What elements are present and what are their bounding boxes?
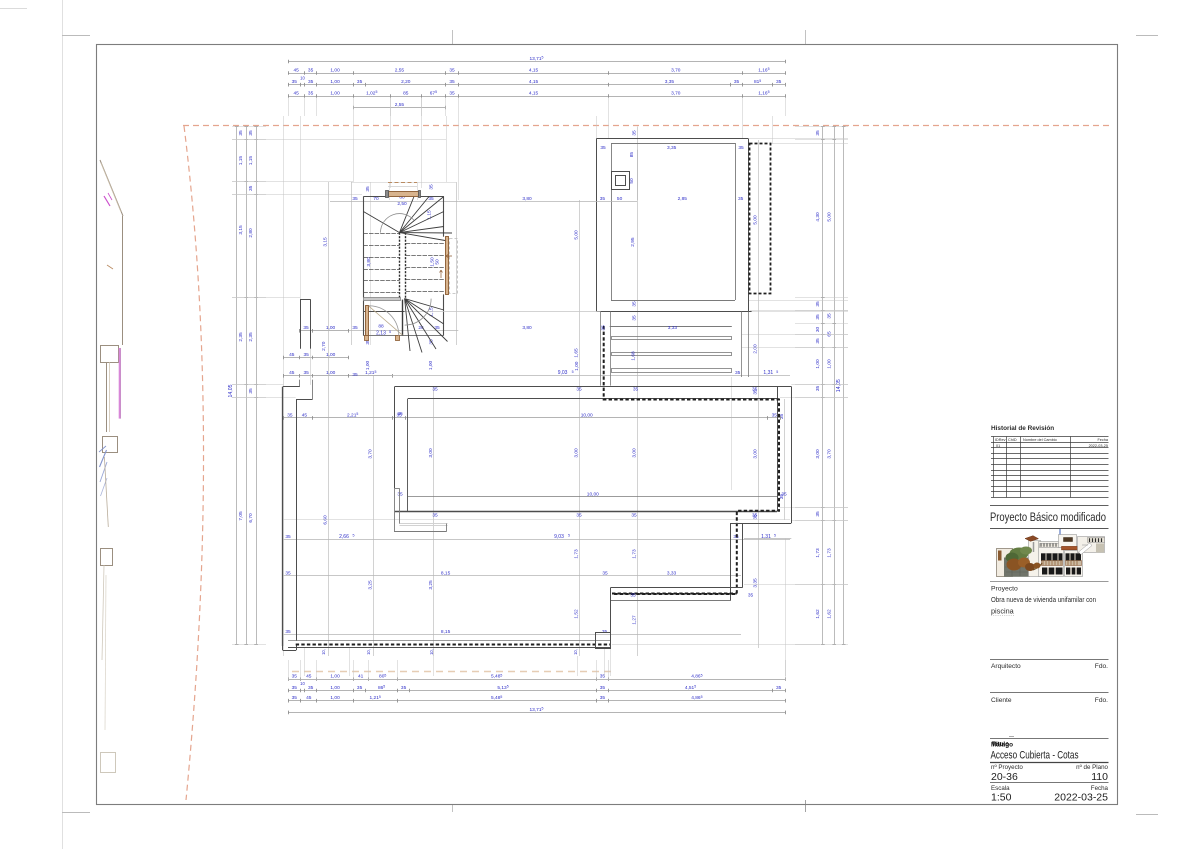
svg-text:Fecha: Fecha [1097, 438, 1108, 442]
svg-text:2,70: 2,70 [321, 341, 327, 351]
svg-text:45: 45 [294, 67, 300, 73]
svg-text:Proyecto: Proyecto [991, 586, 1018, 593]
svg-text:1,73: 1,73 [827, 548, 833, 558]
svg-text:1,62: 1,62 [815, 609, 821, 619]
svg-text:2022-03-25: 2022-03-25 [1054, 792, 1108, 804]
svg-text:1,00: 1,00 [815, 359, 821, 369]
svg-text:Título: Título [992, 741, 1009, 748]
svg-text:Fdo.: Fdo. [1095, 663, 1108, 670]
svg-text:35: 35 [285, 534, 291, 540]
svg-text:35: 35 [365, 186, 371, 192]
svg-text:9,03: 9,03 [558, 370, 568, 376]
svg-text:35: 35 [401, 685, 407, 691]
svg-text:Obra nueva de vivienda unifami: Obra nueva de vivienda unifamilar con [991, 595, 1096, 604]
svg-text:6,70: 6,70 [248, 513, 254, 523]
svg-text:7,05: 7,05 [238, 511, 244, 521]
svg-text:2022-03-25: 2022-03-25 [1089, 444, 1108, 448]
svg-text:50: 50 [435, 259, 441, 265]
svg-text:1,00: 1,00 [330, 90, 340, 96]
svg-text:1,68: 1,68 [631, 351, 637, 361]
svg-text:2,35: 2,35 [238, 332, 244, 342]
svg-text:1,00: 1,00 [326, 325, 336, 331]
svg-text:3,70: 3,70 [367, 449, 373, 459]
svg-text:14,05: 14,05 [228, 384, 234, 397]
svg-text:20-36: 20-36 [991, 771, 1018, 783]
svg-text:Arquitecto: Arquitecto [991, 663, 1021, 670]
svg-text:35: 35 [308, 67, 314, 73]
svg-text:ChID: ChID [1008, 438, 1017, 442]
svg-text:35: 35 [248, 388, 254, 394]
svg-text:5: 5 [389, 330, 391, 334]
svg-text:8,15: 8,15 [441, 570, 451, 576]
svg-text:35: 35 [631, 301, 637, 307]
svg-text:35: 35 [631, 315, 637, 321]
svg-text:1,00: 1,00 [827, 359, 833, 369]
svg-text:1,00: 1,00 [330, 674, 340, 680]
svg-text:10: 10 [300, 681, 305, 686]
svg-text:1,62: 1,62 [827, 609, 833, 619]
svg-text:1,00: 1,00 [574, 361, 580, 371]
svg-text:1,27: 1,27 [631, 615, 637, 625]
svg-text:10,: 10, [366, 649, 371, 655]
svg-text:35: 35 [815, 314, 821, 320]
svg-text:Historial de Revisión: Historial de Revisión [991, 425, 1054, 432]
svg-text:1,73: 1,73 [631, 549, 637, 559]
svg-text:35: 35 [748, 593, 754, 599]
svg-text:9,03: 9,03 [554, 534, 564, 540]
svg-text:3,00: 3,00 [428, 448, 434, 458]
svg-text:35: 35 [449, 90, 455, 96]
svg-text:35: 35 [292, 79, 298, 85]
svg-text:2,50: 2,50 [397, 201, 407, 207]
svg-text:35: 35 [815, 511, 821, 517]
svg-text:35: 35 [631, 130, 637, 136]
svg-text:35: 35 [428, 184, 434, 190]
svg-text:45: 45 [289, 352, 295, 358]
svg-text:35: 35 [602, 629, 608, 635]
svg-text:35: 35 [772, 412, 778, 418]
svg-text:35: 35 [815, 130, 821, 136]
svg-text:Acceso Cubierta - Cotas: Acceso Cubierta - Cotas [991, 750, 1079, 762]
svg-text:35: 35 [308, 685, 314, 691]
svg-text:5: 5 [774, 534, 776, 538]
svg-text:1,65: 1,65 [573, 348, 579, 358]
svg-text:2,85: 2,85 [678, 196, 688, 202]
svg-text:41: 41 [358, 674, 364, 680]
svg-text:3,70: 3,70 [827, 449, 833, 459]
svg-text:2,55: 2,55 [395, 102, 405, 108]
svg-text:5,00: 5,00 [752, 215, 758, 225]
svg-text:Proyecto Básico modificado: Proyecto Básico modificado [990, 510, 1106, 524]
svg-text:35: 35 [752, 512, 758, 518]
svg-text:3,35: 3,35 [667, 145, 677, 151]
svg-text:1,00: 1,00 [326, 352, 336, 358]
svg-text:35: 35 [776, 79, 782, 85]
svg-text:35: 35 [357, 685, 363, 691]
svg-text:4,15: 4,15 [529, 79, 539, 85]
svg-text:35: 35 [449, 79, 455, 85]
svg-text:3,35: 3,35 [665, 79, 675, 85]
svg-text:35: 35 [432, 386, 438, 392]
svg-text:50: 50 [629, 178, 635, 184]
svg-text:5: 5 [568, 534, 570, 538]
svg-text:35: 35 [397, 492, 403, 498]
svg-text:35: 35 [734, 79, 740, 85]
svg-text:35: 35 [238, 130, 244, 136]
svg-text:3,70: 3,70 [671, 90, 681, 96]
svg-text:35: 35 [752, 386, 758, 392]
svg-text:2,95: 2,95 [630, 237, 636, 247]
svg-text:13,715: 13,715 [530, 56, 544, 62]
svg-text:35: 35 [449, 67, 455, 73]
svg-text:Nombre del Cambio: Nombre del Cambio [1023, 438, 1057, 442]
svg-text:2,55: 2,55 [395, 67, 405, 73]
svg-text:35: 35 [434, 325, 440, 331]
svg-text:35: 35 [738, 196, 744, 202]
svg-text:1,00: 1,00 [330, 685, 340, 691]
svg-text:35: 35 [735, 370, 741, 376]
svg-text:piscina: piscina [991, 607, 1015, 616]
svg-text:45: 45 [306, 695, 312, 701]
svg-text:3,25: 3,25 [428, 580, 434, 590]
svg-text:35: 35 [304, 370, 310, 376]
svg-text:10: 10 [300, 75, 305, 80]
svg-text:14,05: 14,05 [836, 379, 842, 392]
svg-text:45: 45 [289, 370, 295, 376]
svg-text:35: 35 [304, 352, 310, 358]
svg-text:35: 35 [432, 512, 438, 518]
svg-text:88: 88 [378, 323, 384, 329]
svg-text:45: 45 [294, 90, 300, 96]
svg-text:10,00: 10,00 [581, 412, 593, 418]
svg-text:35: 35 [600, 685, 606, 691]
svg-text:35: 35 [285, 570, 291, 576]
svg-text:5,00: 5,00 [573, 230, 579, 240]
svg-text:10,: 10, [429, 649, 434, 655]
svg-text:35: 35 [248, 130, 254, 136]
svg-text:Fdo.: Fdo. [1095, 697, 1108, 704]
svg-text:1,00: 1,00 [330, 695, 340, 701]
svg-text:35: 35 [352, 372, 358, 378]
svg-text:3,33: 3,33 [668, 325, 678, 331]
svg-text:35: 35 [292, 674, 298, 680]
svg-text:35: 35 [352, 196, 358, 202]
svg-text:35: 35 [815, 338, 821, 344]
svg-text:3,25: 3,25 [367, 580, 373, 590]
svg-text:35: 35 [292, 685, 298, 691]
svg-text:35: 35 [428, 196, 434, 202]
svg-text:1,73: 1,73 [815, 548, 821, 558]
svg-text:3,15: 3,15 [322, 237, 328, 247]
svg-text:3,35: 3,35 [752, 578, 758, 588]
svg-text:3,80: 3,80 [522, 196, 532, 202]
svg-text:35: 35 [600, 145, 606, 151]
svg-text:35: 35 [357, 79, 363, 85]
svg-text:35: 35 [781, 492, 787, 498]
svg-text:35: 35 [285, 629, 291, 635]
svg-text:2,00: 2,00 [752, 344, 758, 354]
svg-text:nº Proyecto: nº Proyecto [991, 764, 1023, 771]
svg-text:1,31: 1,31 [763, 370, 773, 376]
svg-text:65: 65 [827, 331, 833, 337]
svg-text:35: 35 [776, 685, 782, 691]
svg-text:35: 35 [600, 695, 606, 701]
svg-text:5: 5 [776, 370, 778, 374]
svg-text:35: 35 [633, 386, 639, 392]
svg-text:3,00: 3,00 [815, 449, 821, 459]
svg-text:1,00: 1,00 [326, 370, 336, 376]
svg-text:1,73: 1,73 [573, 549, 579, 559]
svg-text:30: 30 [815, 327, 821, 333]
svg-text:10,: 10, [321, 649, 326, 655]
svg-text:3,15: 3,15 [238, 225, 244, 235]
svg-text:35: 35 [815, 386, 821, 392]
svg-text:35: 35 [630, 593, 636, 599]
svg-text:1,15: 1,15 [238, 156, 244, 166]
svg-text:35: 35 [631, 512, 637, 518]
svg-text:5: 5 [353, 534, 355, 538]
svg-text:3,80: 3,80 [366, 257, 372, 267]
svg-text:3,33: 3,33 [667, 570, 677, 576]
svg-text:35: 35 [292, 695, 298, 701]
svg-text:3,00: 3,00 [573, 448, 579, 458]
svg-text:35: 35 [303, 325, 309, 331]
svg-text:13,715: 13,715 [530, 707, 544, 713]
svg-text:IDRev: IDRev [995, 438, 1006, 442]
svg-text:10,: 10, [573, 649, 578, 655]
svg-text:3,70: 3,70 [671, 67, 681, 73]
svg-text:35: 35 [602, 570, 608, 576]
svg-text:35: 35 [308, 90, 314, 96]
svg-text:3,00: 3,00 [752, 449, 758, 459]
svg-text:4,30: 4,30 [815, 212, 821, 222]
svg-text:1,00: 1,00 [330, 79, 340, 85]
svg-text:8,15: 8,15 [441, 629, 451, 635]
svg-text:35: 35 [827, 313, 833, 319]
svg-text:45: 45 [302, 412, 308, 418]
svg-text:70: 70 [373, 196, 379, 202]
svg-text:35: 35 [738, 145, 744, 151]
svg-text:1:50: 1:50 [991, 792, 1012, 804]
svg-text:01: 01 [996, 444, 1000, 448]
svg-text:35: 35 [576, 512, 582, 518]
svg-text:85: 85 [403, 90, 409, 96]
svg-text:nº de Plano: nº de Plano [1076, 764, 1108, 771]
svg-text:1,00: 1,00 [330, 67, 340, 73]
svg-text:1,00: 1,00 [365, 361, 371, 371]
svg-text:3,80: 3,80 [522, 325, 532, 331]
svg-text:35: 35 [576, 386, 582, 392]
svg-text:45: 45 [306, 674, 312, 680]
svg-text:1,31: 1,31 [761, 534, 771, 540]
svg-text:Cliente: Cliente [991, 697, 1012, 704]
svg-text:35: 35 [815, 301, 821, 307]
svg-text:2,35: 2,35 [248, 332, 254, 342]
svg-text:2,66: 2,66 [339, 534, 349, 540]
svg-text:2,20: 2,20 [401, 79, 411, 85]
svg-text:1,15: 1,15 [248, 156, 254, 166]
svg-text:35: 35 [397, 411, 403, 417]
svg-text:3,00: 3,00 [631, 448, 637, 458]
svg-text:4,15: 4,15 [529, 90, 539, 96]
svg-text:1,52: 1,52 [573, 609, 579, 619]
svg-text:2,80: 2,80 [248, 228, 254, 238]
svg-text:85: 85 [629, 152, 635, 158]
svg-text:1,00: 1,00 [428, 361, 434, 371]
svg-text:5,00: 5,00 [827, 212, 833, 222]
svg-text:35: 35 [601, 325, 607, 331]
svg-text:5: 5 [572, 370, 574, 374]
svg-text:35: 35 [287, 412, 293, 418]
svg-text:35: 35 [308, 79, 314, 85]
svg-text:110: 110 [1091, 771, 1108, 783]
svg-text:35: 35 [248, 185, 254, 191]
svg-text:4,15: 4,15 [529, 67, 539, 73]
svg-text:6,60: 6,60 [322, 515, 328, 525]
svg-text:35: 35 [352, 325, 358, 331]
